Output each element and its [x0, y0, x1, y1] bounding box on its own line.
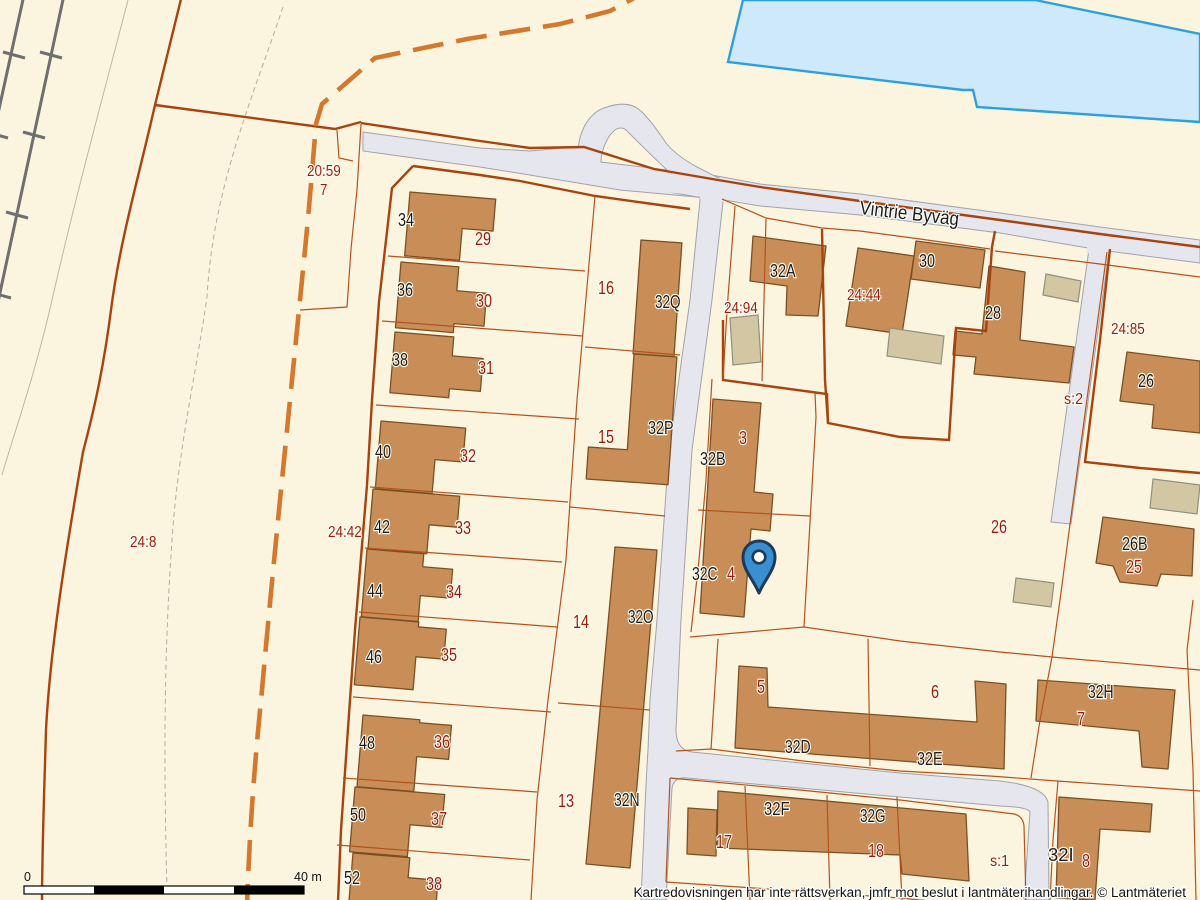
svg-text:4: 4 — [727, 564, 735, 584]
svg-text:16: 16 — [598, 278, 614, 298]
svg-text:17: 17 — [716, 832, 732, 852]
svg-text:13: 13 — [558, 791, 574, 811]
svg-text:42: 42 — [374, 517, 390, 537]
svg-text:32A: 32A — [770, 261, 796, 281]
svg-text:40: 40 — [375, 442, 391, 462]
svg-text:26: 26 — [991, 517, 1007, 537]
svg-text:28: 28 — [985, 303, 1001, 323]
svg-text:18: 18 — [868, 841, 884, 861]
svg-text:7: 7 — [320, 182, 327, 199]
svg-text:14: 14 — [573, 612, 589, 632]
svg-text:0: 0 — [24, 870, 31, 884]
svg-text:s:1: s:1 — [990, 853, 1009, 870]
svg-text:24:44: 24:44 — [847, 287, 881, 304]
svg-text:48: 48 — [359, 733, 375, 753]
svg-text:6: 6 — [931, 682, 939, 702]
svg-text:32E: 32E — [917, 749, 943, 769]
svg-text:26B: 26B — [1122, 534, 1148, 554]
svg-text:46: 46 — [366, 647, 382, 667]
svg-text:26: 26 — [1138, 371, 1154, 391]
svg-text:32: 32 — [460, 446, 476, 466]
svg-text:38: 38 — [426, 874, 442, 894]
svg-text:32F: 32F — [764, 799, 790, 819]
svg-text:24:42: 24:42 — [328, 524, 362, 541]
svg-text:36: 36 — [434, 732, 450, 752]
svg-text:32O: 32O — [628, 607, 654, 627]
svg-text:40 m: 40 m — [294, 870, 322, 884]
svg-text:34: 34 — [446, 582, 462, 602]
svg-text:30: 30 — [476, 291, 492, 311]
svg-text:38: 38 — [392, 350, 408, 370]
svg-text:24:8: 24:8 — [130, 534, 156, 551]
svg-text:50: 50 — [350, 805, 366, 825]
svg-text:35: 35 — [441, 645, 457, 665]
svg-text:32I: 32I — [1048, 845, 1074, 865]
svg-text:34: 34 — [398, 210, 414, 230]
svg-text:32P: 32P — [648, 418, 674, 438]
svg-text:33: 33 — [455, 518, 471, 538]
svg-text:3: 3 — [739, 428, 747, 448]
svg-text:31: 31 — [478, 358, 494, 378]
svg-text:15: 15 — [598, 427, 614, 447]
svg-text:32H: 32H — [1088, 682, 1114, 702]
svg-text:32B: 32B — [700, 449, 726, 469]
svg-text:36: 36 — [397, 280, 413, 300]
svg-text:37: 37 — [431, 809, 447, 829]
svg-text:32G: 32G — [860, 806, 886, 826]
svg-text:Kartredovisningen har inte rät: Kartredovisningen har inte rättsverkan, … — [634, 885, 1187, 900]
svg-text:29: 29 — [475, 229, 491, 249]
svg-text:5: 5 — [757, 677, 765, 697]
svg-text:32N: 32N — [614, 790, 640, 810]
svg-text:32C: 32C — [692, 564, 718, 584]
svg-text:52: 52 — [344, 868, 360, 888]
svg-text:25: 25 — [1126, 557, 1142, 577]
svg-text:32Q: 32Q — [655, 292, 681, 312]
svg-text:24:85: 24:85 — [1111, 321, 1145, 338]
svg-text:30: 30 — [919, 251, 935, 271]
svg-text:24:94: 24:94 — [724, 300, 758, 317]
svg-text:20:59: 20:59 — [307, 163, 341, 180]
svg-text:44: 44 — [367, 581, 383, 601]
svg-text:8: 8 — [1082, 851, 1090, 871]
svg-text:7: 7 — [1077, 709, 1085, 729]
svg-text:32D: 32D — [785, 737, 811, 757]
svg-text:s:2: s:2 — [1064, 391, 1083, 408]
